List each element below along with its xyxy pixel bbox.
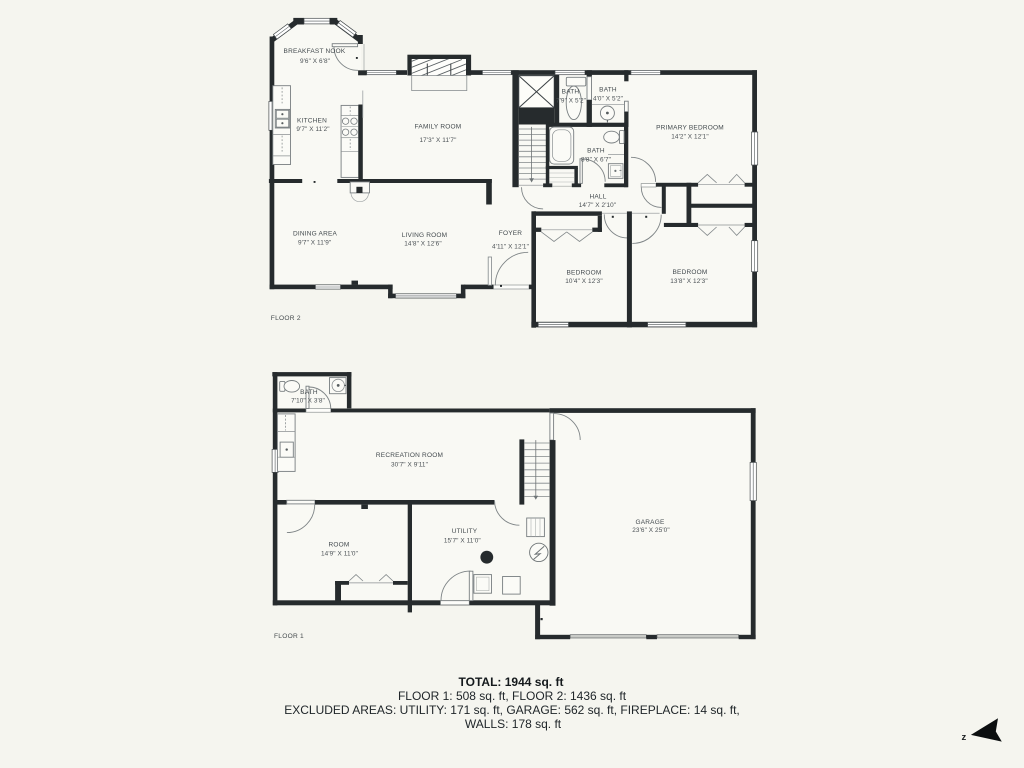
svg-text:GARAGE: GARAGE	[635, 519, 664, 526]
svg-text:EXCLUDED AREAS: UTILITY: 171 s: EXCLUDED AREAS: UTILITY: 171 sq. ft, GAR…	[284, 703, 740, 717]
svg-text:UTILITY: UTILITY	[452, 528, 478, 535]
svg-text:PRIMARY BEDROOM: PRIMARY BEDROOM	[656, 125, 724, 132]
svg-text:FLOOR 1: 508 sq. ft, FLOOR 2:: FLOOR 1: 508 sq. ft, FLOOR 2: 1436 sq. f…	[398, 689, 627, 703]
svg-text:BEDROOM: BEDROOM	[673, 269, 708, 276]
svg-text:KITCHEN: KITCHEN	[297, 117, 327, 124]
svg-text:z: z	[962, 732, 967, 743]
svg-text:TOTAL: 1944 sq. ft: TOTAL: 1944 sq. ft	[459, 675, 564, 689]
svg-text:WALLS: 178 sq. ft: WALLS: 178 sq. ft	[465, 717, 562, 731]
svg-text:4'0" X 5'2": 4'0" X 5'2"	[593, 96, 623, 103]
svg-text:30'7" X 9'11": 30'7" X 9'11"	[391, 461, 428, 468]
svg-text:14'8" X 12'6": 14'8" X 12'6"	[404, 240, 441, 247]
svg-text:BEDROOM: BEDROOM	[567, 270, 602, 277]
svg-text:14'9" X 11'0": 14'9" X 11'0"	[321, 551, 358, 558]
svg-text:BATH: BATH	[562, 88, 580, 95]
svg-text:DINING AREA: DINING AREA	[293, 231, 338, 238]
svg-text:FLOOR 2: FLOOR 2	[271, 315, 301, 322]
svg-text:HALL: HALL	[589, 194, 606, 201]
svg-text:13'8" X 12'3": 13'8" X 12'3"	[670, 278, 707, 285]
svg-text:17'3" X 11'7": 17'3" X 11'7"	[420, 137, 457, 144]
svg-text:23'6" X 25'0": 23'6" X 25'0"	[632, 527, 669, 534]
svg-text:RECREATION ROOM: RECREATION ROOM	[376, 452, 443, 459]
svg-text:8'8" X 6'7": 8'8" X 6'7"	[581, 157, 611, 164]
svg-text:FOYER: FOYER	[499, 230, 522, 237]
svg-text:FLOOR 1: FLOOR 1	[274, 633, 304, 640]
svg-text:BREAKFAST NOOK: BREAKFAST NOOK	[284, 48, 346, 55]
svg-text:ROOM: ROOM	[328, 542, 349, 549]
svg-text:14'7" X 2'10": 14'7" X 2'10"	[579, 202, 616, 209]
svg-text:4'11" X 12'1": 4'11" X 12'1"	[492, 243, 529, 250]
svg-text:9'7" X 11'2": 9'7" X 11'2"	[296, 126, 329, 133]
svg-text:15'7" X 11'0": 15'7" X 11'0"	[444, 538, 481, 545]
svg-text:FAMILY ROOM: FAMILY ROOM	[415, 123, 462, 130]
svg-text:BATH: BATH	[300, 389, 318, 396]
svg-text:LIVING ROOM: LIVING ROOM	[402, 232, 448, 239]
svg-text:9'6" X 6'8": 9'6" X 6'8"	[300, 58, 330, 65]
svg-text:9'7" X 11'9": 9'7" X 11'9"	[298, 240, 331, 247]
svg-text:7'10" X 3'8": 7'10" X 3'8"	[291, 397, 325, 404]
svg-text:10'4" X 12'3": 10'4" X 12'3"	[565, 278, 602, 285]
svg-text:14'2" X 12'1": 14'2" X 12'1"	[671, 134, 708, 141]
svg-text:BATH: BATH	[587, 148, 605, 155]
svg-text:BATH: BATH	[599, 87, 617, 94]
svg-text:7'9" X 5'2": 7'9" X 5'2"	[556, 97, 586, 104]
